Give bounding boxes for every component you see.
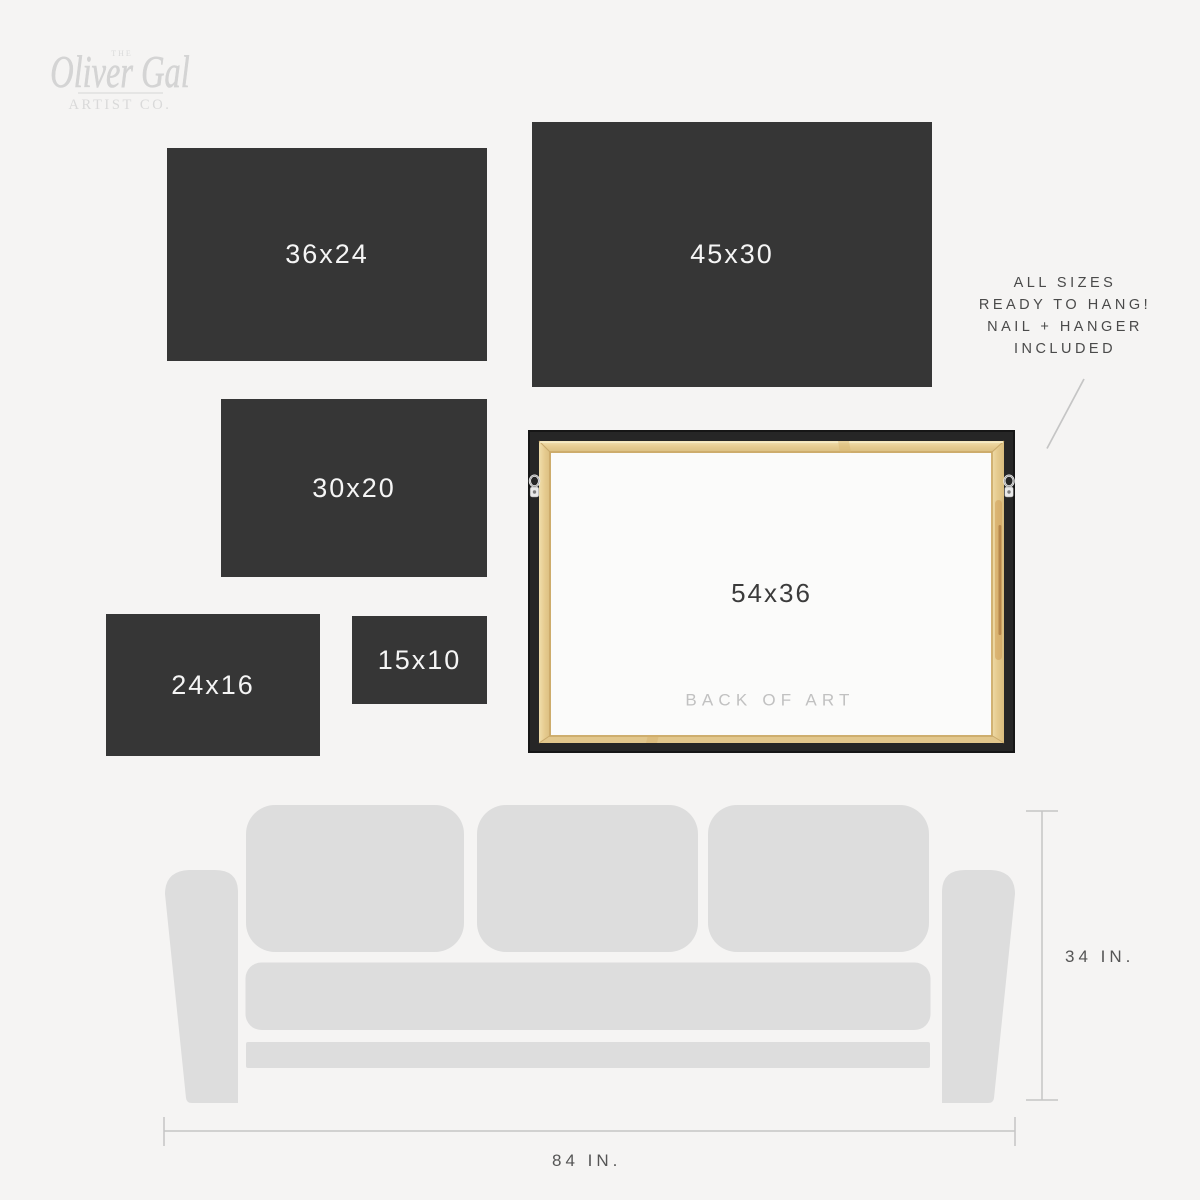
svg-text:ARTIST CO.: ARTIST CO. (68, 97, 171, 113)
svg-text:BACK OF ART: BACK OF ART (685, 691, 854, 710)
svg-text:Oliver Gal: Oliver Gal (50, 48, 189, 97)
svg-text:54x36: 54x36 (731, 578, 812, 608)
